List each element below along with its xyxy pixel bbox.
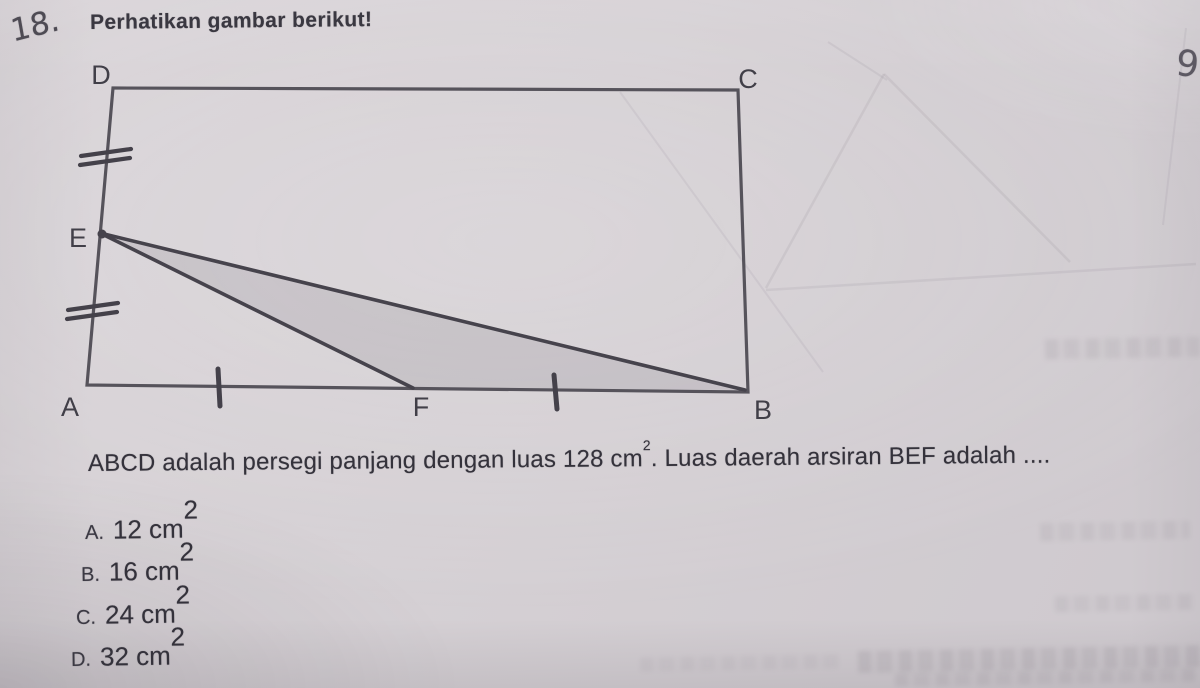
segment-eb — [100, 233, 745, 390]
option-a-letter: A. — [85, 522, 104, 544]
option-c-value: 24 cm — [105, 599, 176, 630]
question-text: ABCD adalah persegi panjang dengan luas … — [88, 442, 1051, 478]
handwritten-question-number: 18. — [8, 2, 62, 49]
option-d: D.32 cm2 — [71, 640, 186, 673]
ghost-text-smudge — [1045, 337, 1200, 360]
shaded-triangle-bef — [100, 233, 746, 390]
question-text-end: . Luas daerah arsiran BEF adalah .... — [651, 442, 1051, 472]
vertex-label-e: E — [69, 223, 87, 253]
option-b-superscript: 2 — [179, 536, 194, 566]
option-c-letter: C. — [76, 607, 96, 629]
option-d-value: 32 cm — [100, 641, 171, 672]
option-b-value: 16 cm — [109, 556, 180, 587]
option-d-letter: D. — [71, 649, 91, 671]
question-superscript: 2 — [643, 437, 651, 453]
question-text-start: ABCD adalah persegi panjang dengan luas … — [88, 445, 643, 477]
ghost-text-smudge — [640, 654, 840, 671]
ghost-text-smudge — [895, 668, 1195, 686]
option-a-value: 12 cm — [113, 514, 184, 545]
vertex-label-f: F — [413, 392, 430, 422]
handwritten-margin-digit: 9 — [1174, 43, 1200, 86]
tick-marks — [67, 149, 557, 409]
scanned-worksheet-page: 18. Perhatikan gambar berikut! 9 — [0, 0, 1200, 688]
segment-ef — [100, 233, 413, 388]
question-prompt: Perhatikan gambar berikut! — [90, 8, 373, 35]
vertex-label-b: B — [754, 395, 772, 425]
ghost-text-smudge — [1040, 521, 1190, 542]
option-d-superscript: 2 — [170, 621, 185, 651]
ghost-text-smudge — [858, 645, 1200, 673]
option-b-letter: B. — [81, 564, 100, 586]
point-e-dot — [98, 230, 107, 239]
rectangle-abcd — [87, 88, 748, 392]
ghost-bleedthrough-lines — [620, 28, 1196, 372]
vertex-label-a: A — [61, 392, 79, 422]
option-a-superscript: 2 — [183, 494, 198, 524]
option-c-superscript: 2 — [175, 579, 190, 609]
vertex-label-d: D — [91, 60, 111, 90]
ghost-text-smudge — [1055, 594, 1195, 612]
vertex-label-c: C — [738, 64, 758, 94]
